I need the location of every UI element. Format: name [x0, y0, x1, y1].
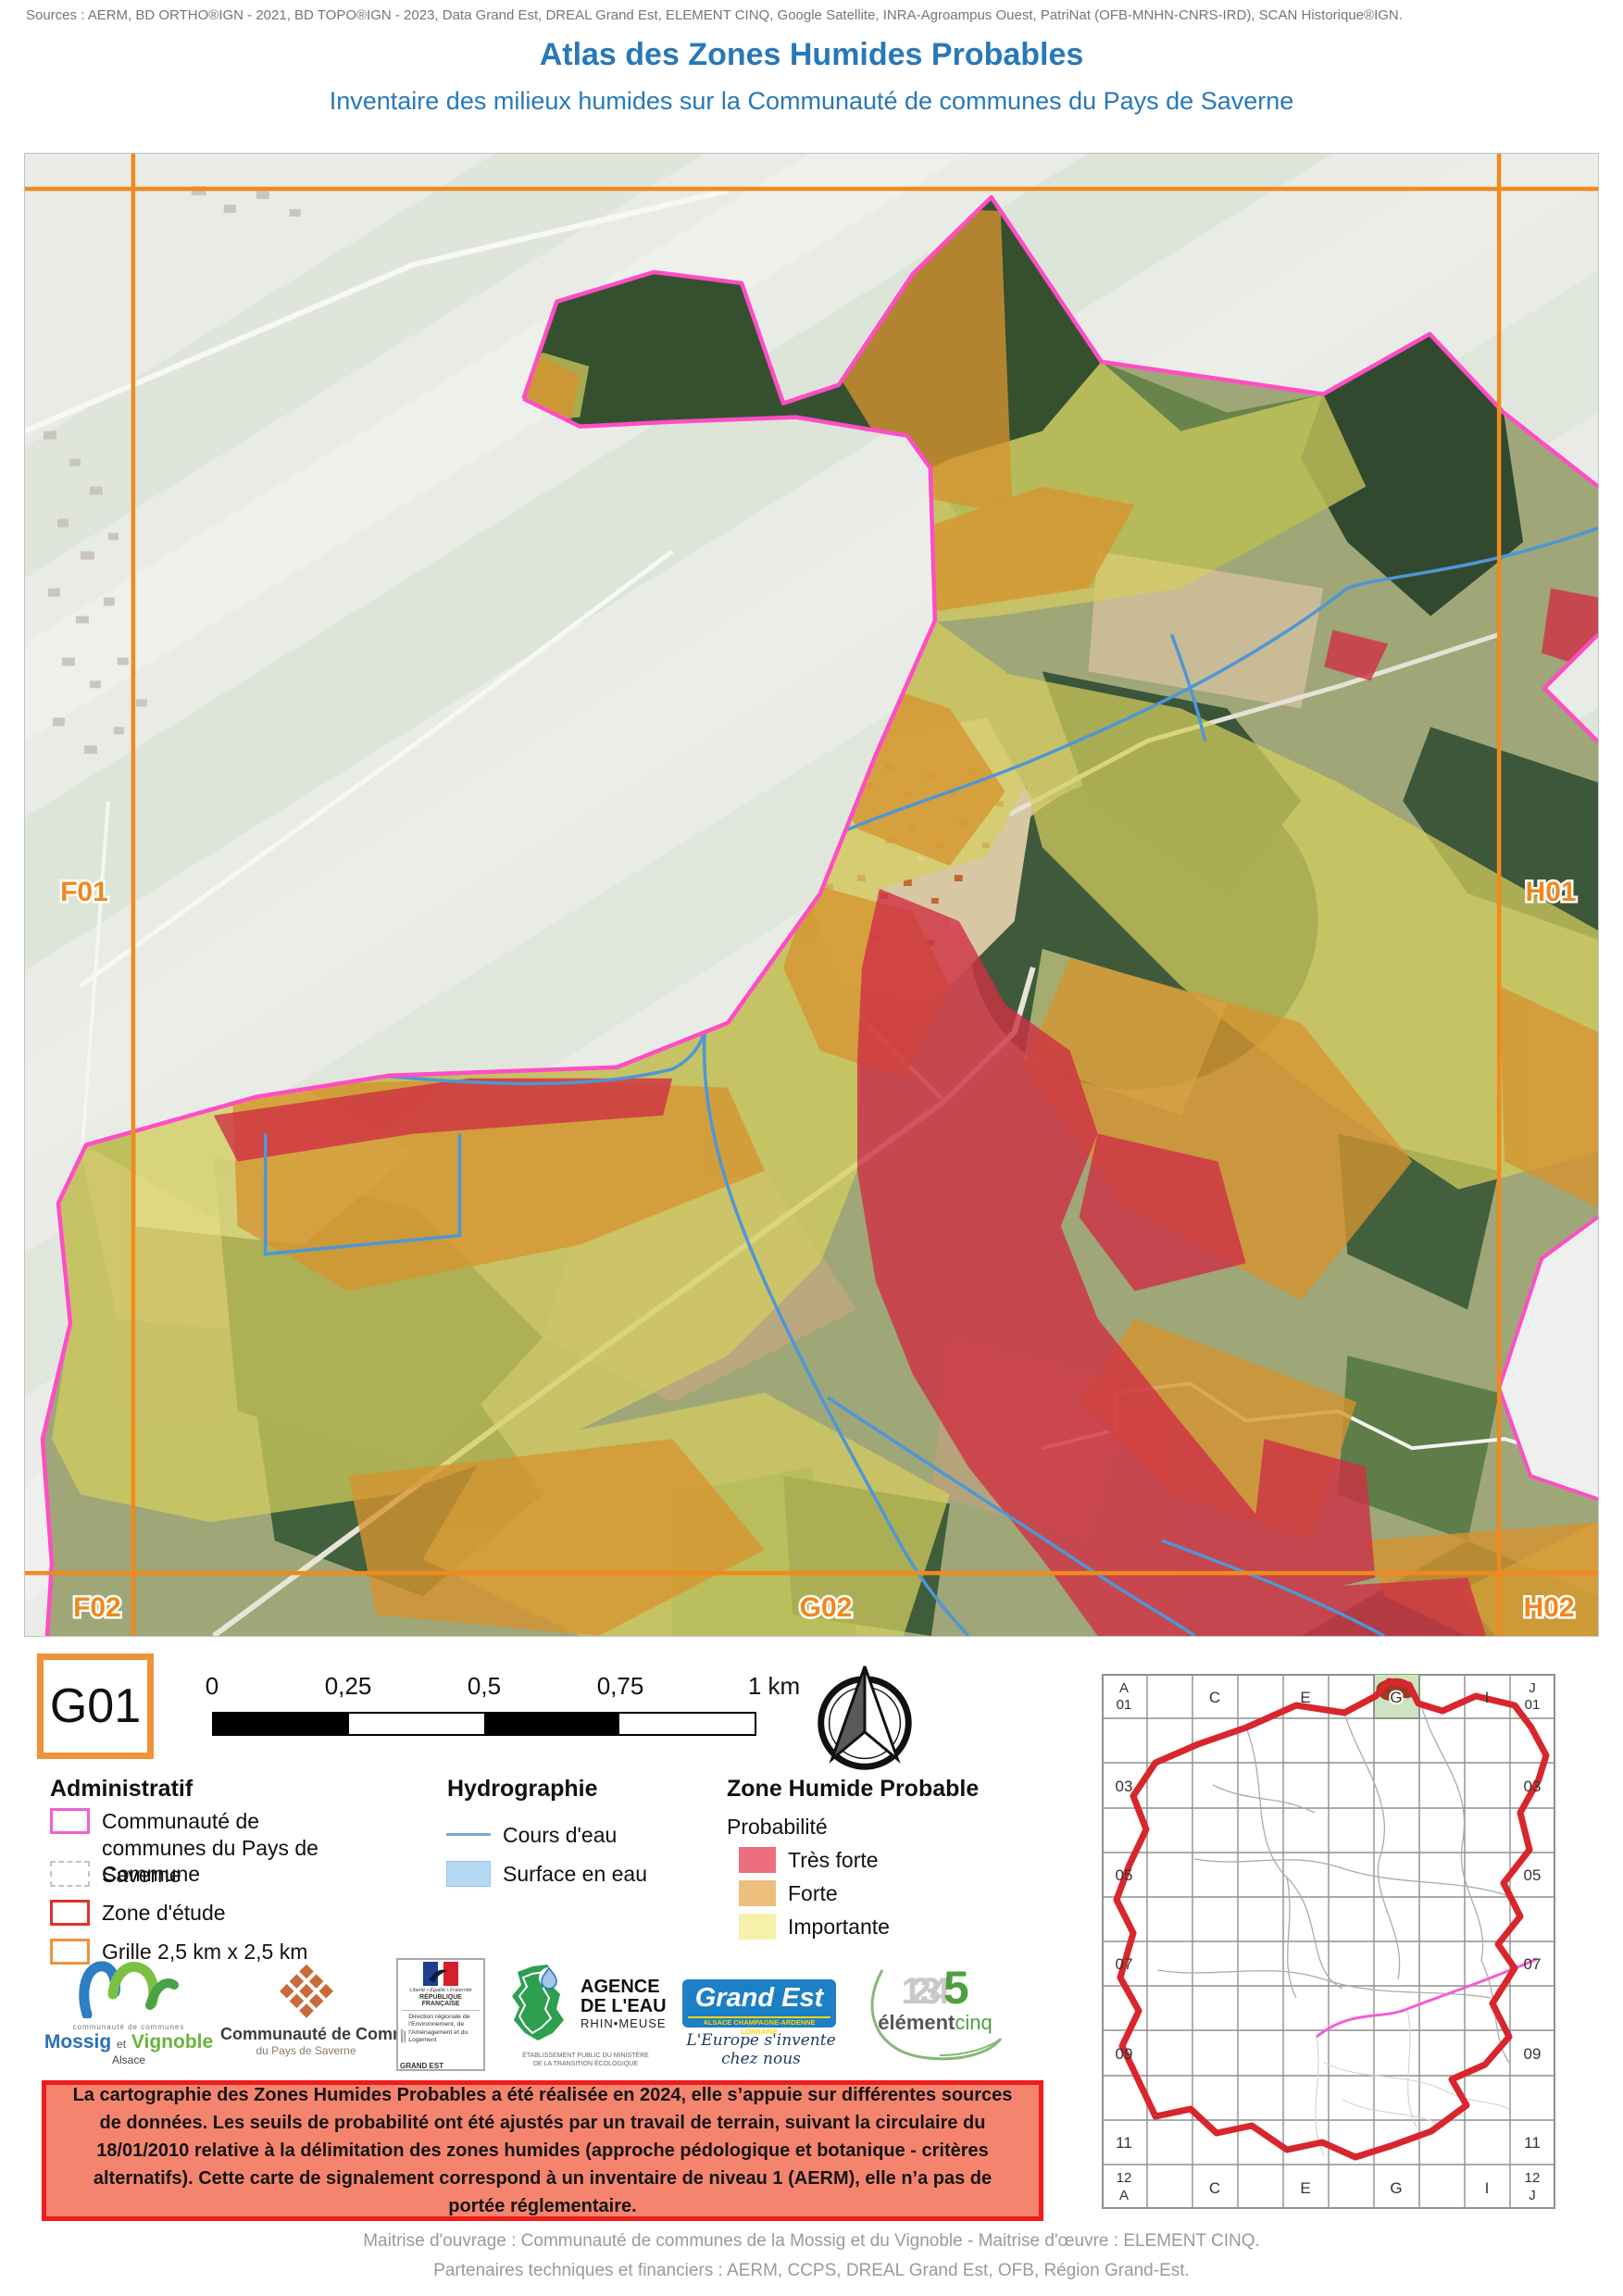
legend-item-zone-etude: Zone d'étude — [50, 1900, 226, 1927]
svg-text:07: 07 — [1116, 1955, 1133, 1973]
logo-mossig-vignoble: communauté de communes Mossig et Vignobl… — [41, 1961, 217, 2066]
svg-text:A: A — [1119, 1680, 1129, 1696]
svg-text:C: C — [1209, 2179, 1220, 2197]
scalebar-tick-075: 0,75 — [597, 1672, 644, 1701]
svg-text:C: C — [1209, 1689, 1220, 1706]
svg-text:11: 11 — [1116, 2134, 1132, 2152]
svg-text:01: 01 — [1525, 1697, 1541, 1713]
legend-item-forte: Forte — [739, 1880, 838, 1907]
grid-label-f01: F01 — [60, 877, 108, 907]
map-canvas: F01 H01 F02 G02 H02 — [25, 154, 1598, 1636]
svg-text:J: J — [1529, 1680, 1536, 1696]
svg-text:09: 09 — [1116, 2045, 1133, 2063]
legend-item-cours-eau: Cours d'eau — [446, 1822, 617, 1849]
svg-text:G: G — [1390, 2179, 1402, 2197]
svg-text:05: 05 — [1524, 1866, 1542, 1884]
footer-partenaires: Partenaires techniques et financiers : A… — [0, 2261, 1623, 2281]
importante-swatch — [739, 1914, 776, 1940]
forte-swatch — [739, 1880, 776, 1906]
legend-zhp-subtitle: Probabilité — [727, 1815, 828, 1840]
legend-admin-title: Administratif — [50, 1776, 193, 1803]
svg-text:03: 03 — [1524, 1778, 1542, 1795]
legend-item-surface-eau: Surface en eau — [446, 1861, 647, 1888]
zone-etude-swatch — [50, 1900, 90, 1926]
svg-text:12: 12 — [1525, 2170, 1541, 2186]
svg-text:12: 12 — [1117, 2170, 1132, 2186]
logo-grand-est: Grand Est ALSACE CHAMPAGNE-ARDENNE LORRA… — [682, 1979, 840, 2068]
scalebar-tick-0: 0 — [206, 1672, 218, 1701]
legend-item-importante: Importante — [739, 1914, 890, 1940]
north-arrow-icon — [809, 1661, 920, 1786]
french-flag-icon — [423, 1962, 458, 1986]
svg-text:E: E — [1300, 2179, 1310, 2197]
svg-text:05: 05 — [1116, 1866, 1133, 1884]
logo-ccps: Communauté de Communes du Pays de Savern… — [220, 1961, 392, 2057]
svg-text:A: A — [1119, 2188, 1129, 2203]
grid-label-f02: F02 — [73, 1592, 121, 1623]
methodology-notice: La cartographie des Zones Humides Probab… — [42, 2080, 1043, 2221]
ccps-logo-icon — [277, 1961, 336, 2020]
logo-element-cinq: 1234 5 élémentcinq — [866, 1961, 1005, 2035]
legend-hydro-title: Hydrographie — [447, 1776, 598, 1803]
logo-aerm: AGENCE DE L'EAU RHIN•MEUSE ÉTABLISSEMENT… — [505, 1961, 671, 2068]
svg-text:J: J — [1529, 2188, 1536, 2203]
commune-swatch — [50, 1861, 90, 1887]
svg-text:11: 11 — [1524, 2134, 1541, 2152]
scalebar-tick-1km: 1 km — [748, 1672, 800, 1701]
grid-label-g02: G02 — [800, 1592, 853, 1623]
cell-reference-badge: G01 — [37, 1653, 154, 1759]
legend-zhp-title: Zone Humide Probable — [727, 1776, 979, 1803]
surface-eau-swatch — [446, 1861, 491, 1887]
legend-item-tres-forte: Très forte — [739, 1847, 879, 1874]
main-map: F01 H01 F02 G02 H02 — [24, 153, 1599, 1637]
dreal-strokes-icon — [400, 2014, 406, 2058]
svg-text:I: I — [1485, 2179, 1490, 2197]
aerm-logo-icon — [505, 1961, 581, 2046]
tres-forte-swatch — [739, 1847, 776, 1873]
scale-bar — [212, 1712, 756, 1736]
page-title: Atlas des Zones Humides Probables — [0, 37, 1623, 73]
svg-text:07: 07 — [1524, 1955, 1542, 1973]
mossig-logo-icon — [78, 1961, 180, 2018]
svg-text:I: I — [1485, 1689, 1490, 1706]
legend-item-commune: Commune — [50, 1861, 200, 1888]
sources-line: Sources : AERM, BD ORTHO®IGN - 2021, BD … — [26, 7, 1600, 23]
svg-text:01: 01 — [1117, 1697, 1132, 1713]
scalebar-tick-05: 0,5 — [468, 1672, 501, 1701]
cours-eau-swatch — [446, 1833, 491, 1836]
svg-text:09: 09 — [1524, 2045, 1542, 2063]
logo-dreal: Liberté • Égalité • Fraternité RÉPUBLIQU… — [396, 1958, 485, 2071]
overview-grid-map: A 01 C E G I J 01 03 03 05 05 07 07 09 0… — [1102, 1674, 1555, 2209]
grid-label-h02: H02 — [1524, 1592, 1575, 1623]
svg-text:E: E — [1300, 1689, 1310, 1706]
footer-ouvrage: Maitrise d'ouvrage : Communauté de commu… — [0, 2231, 1623, 2252]
scalebar-tick-025: 0,25 — [325, 1672, 372, 1701]
grid-label-h01: H01 — [1526, 877, 1577, 907]
cc-boundary-swatch — [50, 1808, 90, 1834]
svg-text:G: G — [1390, 1689, 1402, 1706]
page-subtitle: Inventaire des milieux humides sur la Co… — [0, 87, 1623, 116]
svg-text:03: 03 — [1116, 1778, 1133, 1795]
